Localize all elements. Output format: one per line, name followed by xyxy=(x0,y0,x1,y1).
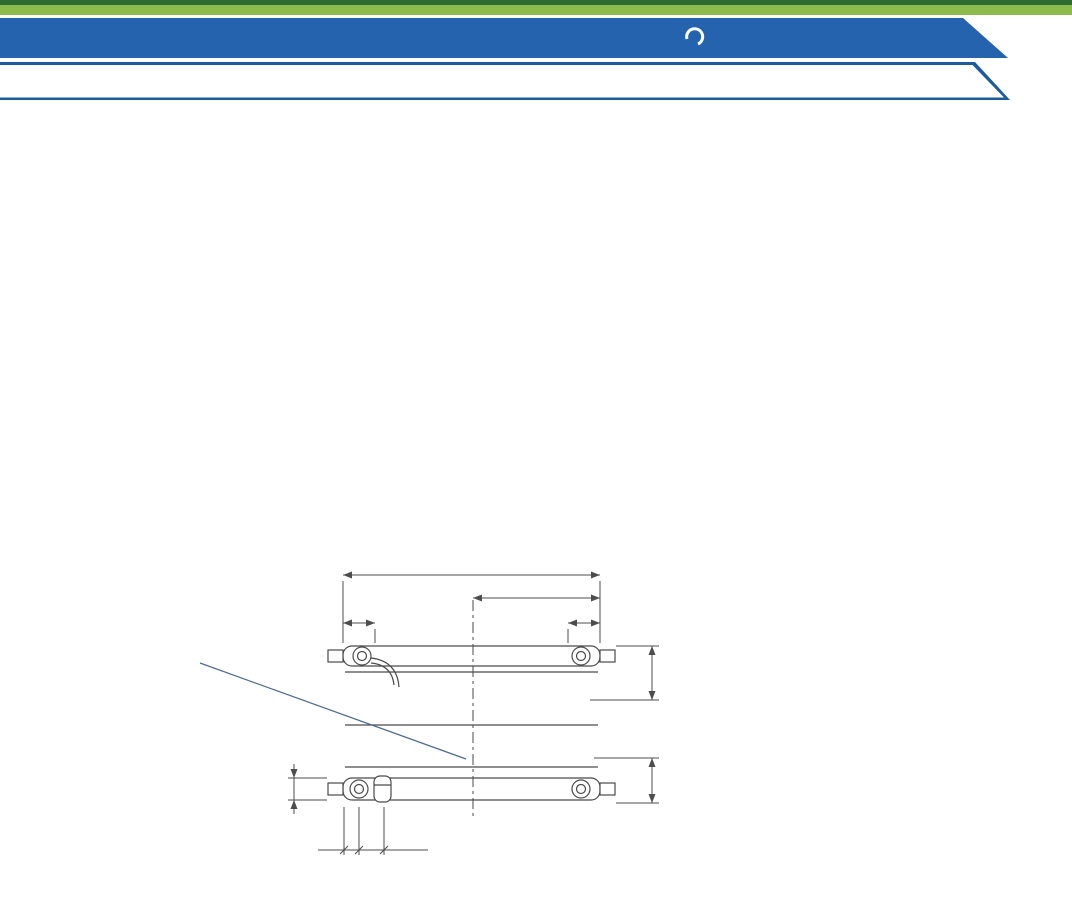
header xyxy=(0,0,1072,100)
rear-view-svg xyxy=(278,555,678,900)
subtitle-banner xyxy=(0,62,1012,100)
brand-swoosh-icon xyxy=(685,21,705,47)
note-uwaga xyxy=(672,597,1070,623)
rear-view-drawing xyxy=(278,555,678,905)
brand-logo xyxy=(692,21,702,55)
bottom-section xyxy=(0,555,1072,900)
radiator-side-diagrams xyxy=(0,129,1072,549)
title-banner xyxy=(0,18,1010,58)
rear-body xyxy=(328,600,615,817)
top-strip-light-green xyxy=(0,5,1072,15)
